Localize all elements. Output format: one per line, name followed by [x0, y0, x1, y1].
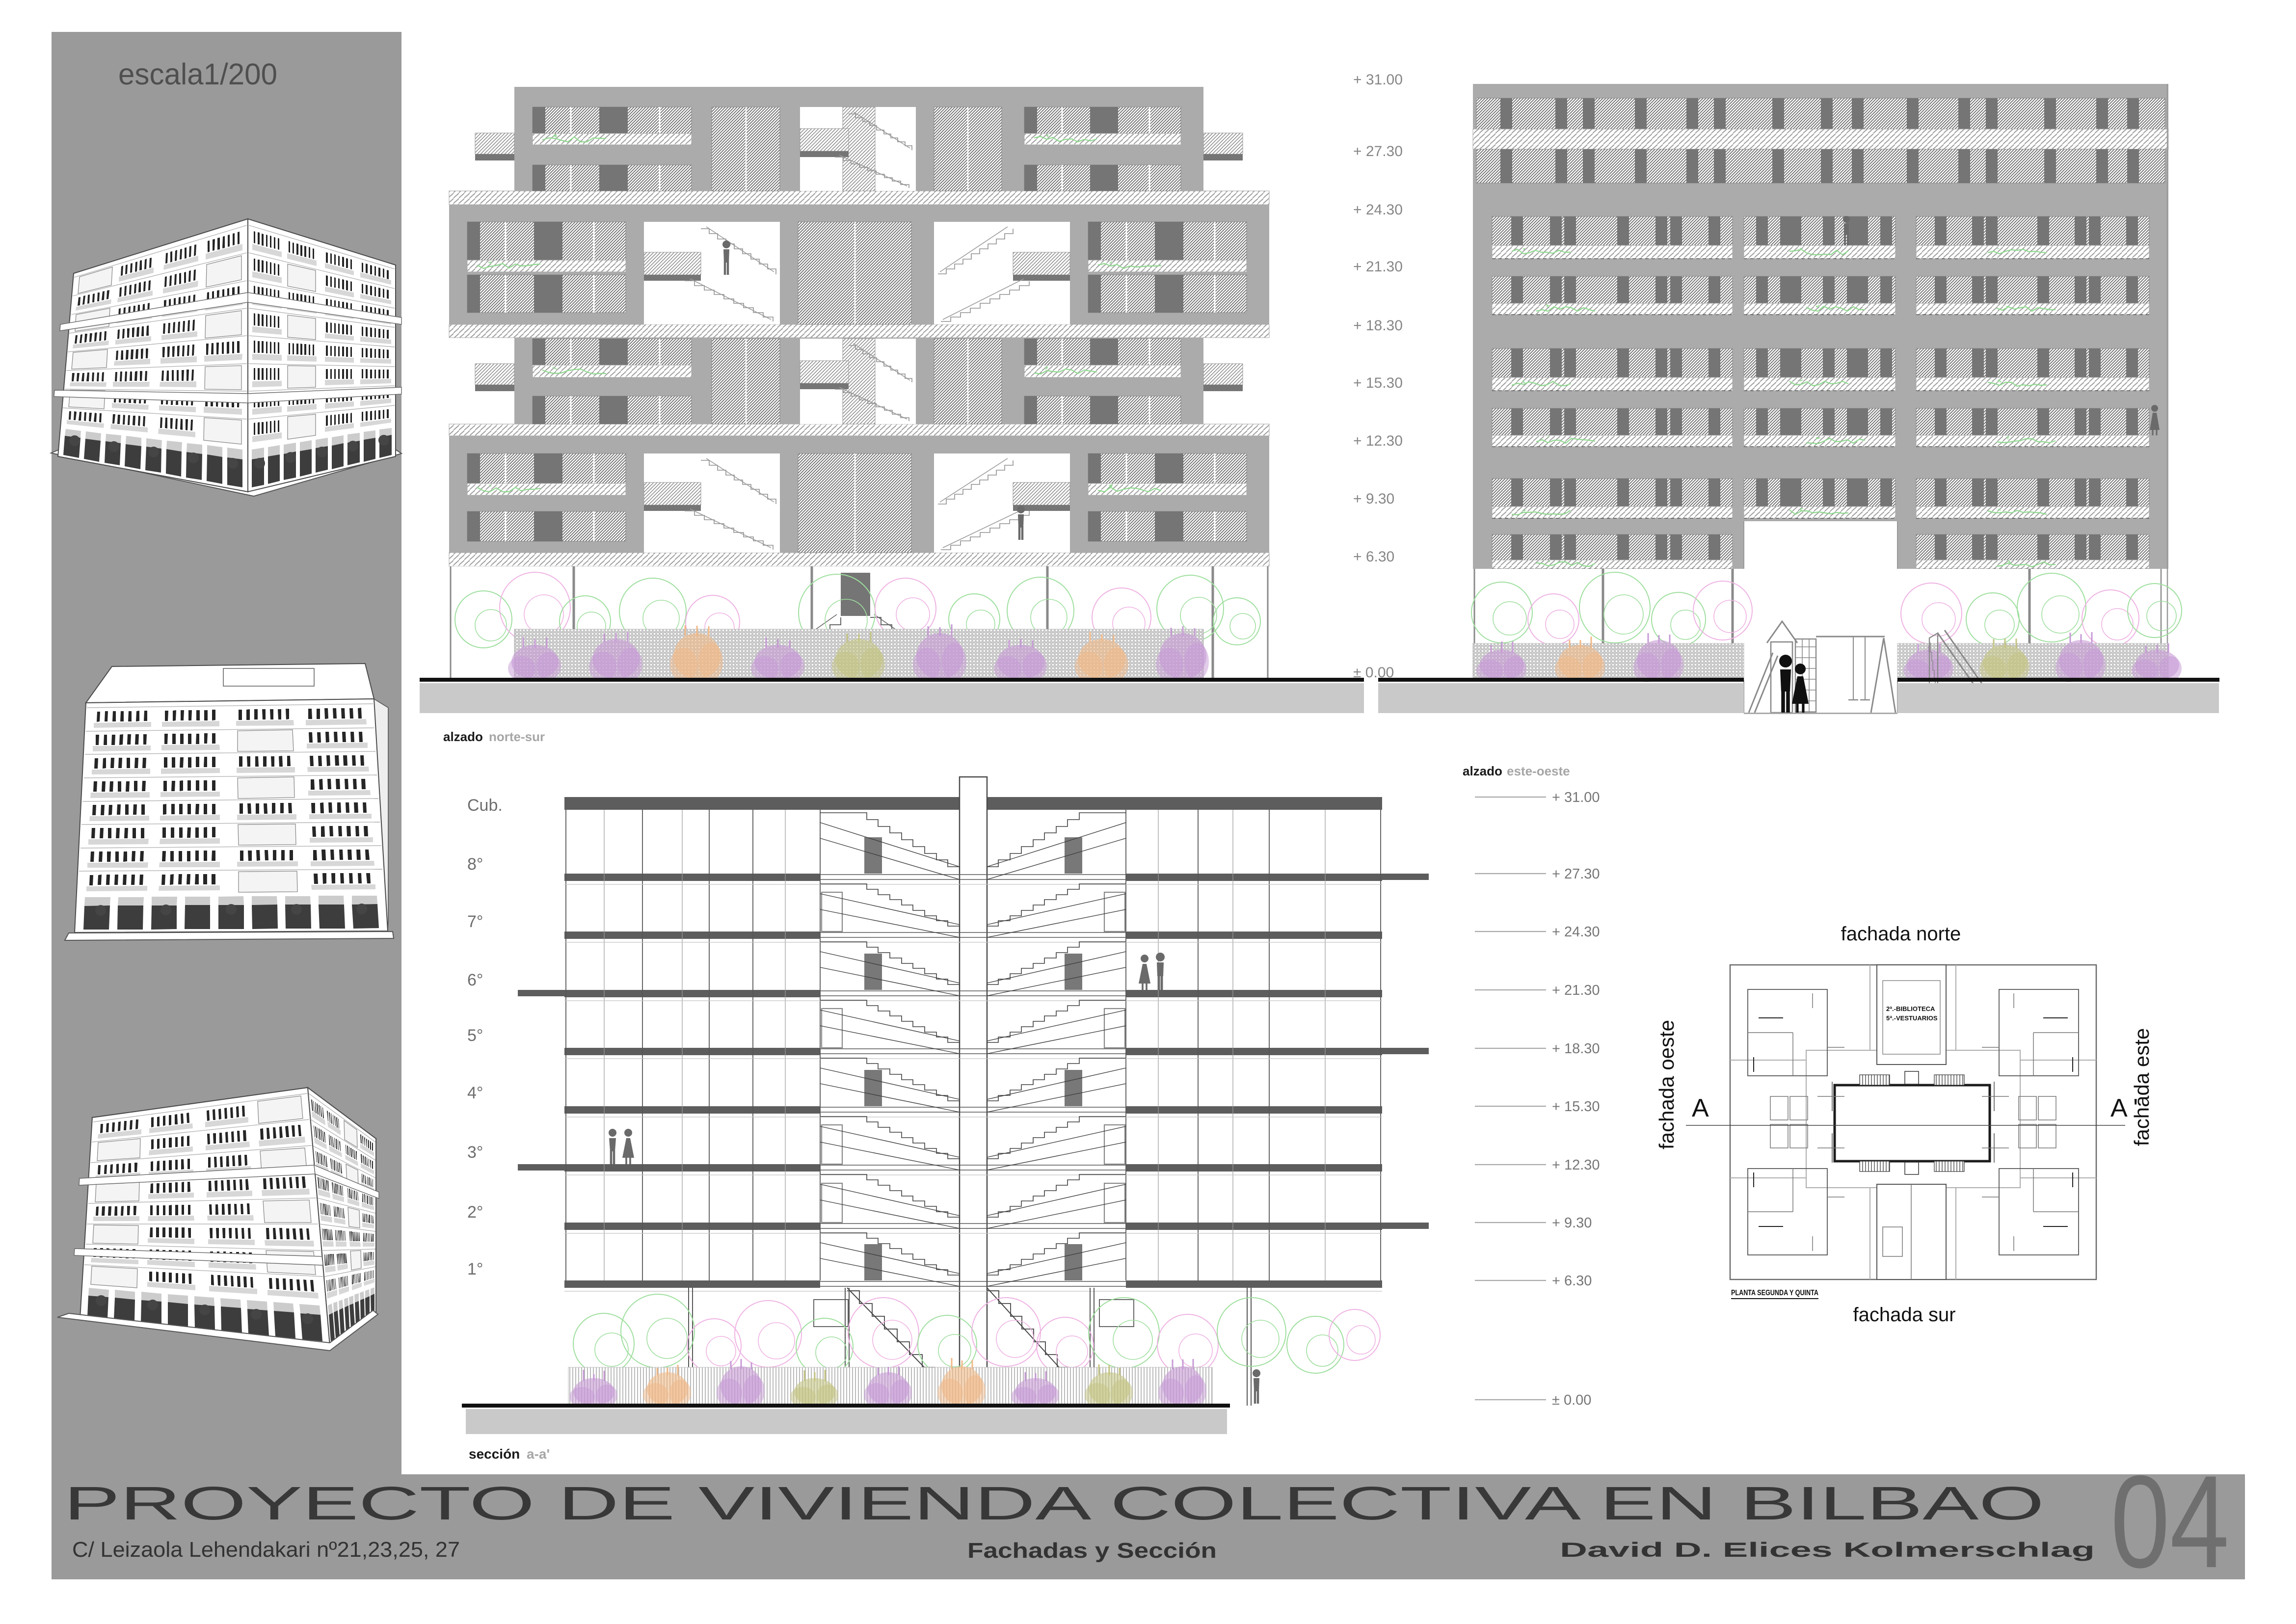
- svg-text:+ 31.00: + 31.00: [1353, 72, 1403, 88]
- svg-text:+ 15.30: + 15.30: [1552, 1099, 1600, 1115]
- svg-text:escala1/200: escala1/200: [118, 57, 277, 91]
- svg-text:4°: 4°: [467, 1084, 483, 1102]
- svg-text:+ 31.00: + 31.00: [1552, 790, 1600, 805]
- svg-text:+ 24.30: + 24.30: [1552, 924, 1600, 940]
- svg-text:fachada oeste: fachada oeste: [1655, 1020, 1678, 1149]
- svg-text:alzado: alzado: [443, 729, 483, 744]
- svg-text:04: 04: [2110, 1448, 2229, 1595]
- svg-text:A: A: [1692, 1094, 1709, 1122]
- svg-text:+ 21.30: + 21.30: [1353, 259, 1403, 275]
- svg-text:+ 15.30: + 15.30: [1353, 375, 1403, 391]
- svg-text:este-oeste: este-oeste: [1507, 764, 1570, 778]
- svg-text:1°: 1°: [467, 1260, 483, 1278]
- svg-text:+ 6.30: + 6.30: [1552, 1273, 1592, 1289]
- svg-text:6°: 6°: [467, 971, 483, 989]
- svg-text:± 0.00: ± 0.00: [1552, 1392, 1591, 1408]
- svg-text:+ 9.30: + 9.30: [1552, 1215, 1592, 1231]
- svg-text:C/ Leizaola Lehendakari nº21,2: C/ Leizaola Lehendakari nº21,23,25, 27: [72, 1538, 460, 1562]
- svg-text:5°: 5°: [467, 1026, 483, 1045]
- svg-text:alzado: alzado: [1463, 764, 1502, 778]
- svg-text:+ 12.30: + 12.30: [1353, 433, 1403, 449]
- svg-text:5ª.-VESTUARIOS: 5ª.-VESTUARIOS: [1886, 1014, 1938, 1022]
- svg-text:+ 6.30: + 6.30: [1353, 549, 1394, 565]
- svg-text:Fachadas y Sección: Fachadas y Sección: [967, 1539, 1217, 1563]
- svg-text:PROYECTO DE VIVIENDA COLECTIVA: PROYECTO DE VIVIENDA COLECTIVA EN BILBAO: [64, 1477, 2044, 1530]
- svg-text:+ 27.30: + 27.30: [1353, 143, 1403, 160]
- svg-text:PLANTA SEGUNDA Y QUINTA: PLANTA SEGUNDA Y QUINTA: [1731, 1289, 1818, 1297]
- svg-text:David D. Elices Kolmerschlag: David D. Elices Kolmerschlag: [1560, 1538, 2095, 1561]
- svg-text:2°: 2°: [467, 1203, 483, 1222]
- svg-text:+ 9.30: + 9.30: [1353, 491, 1394, 507]
- svg-text:Cub.: Cub.: [467, 796, 503, 815]
- svg-text:± 0.00: ± 0.00: [1353, 665, 1394, 681]
- svg-text:+ 24.30: + 24.30: [1353, 202, 1403, 218]
- svg-text:sección: sección: [469, 1446, 520, 1462]
- svg-text:2ª.-BIBLIOTECA: 2ª.-BIBLIOTECA: [1886, 1005, 1935, 1012]
- svg-text:7°: 7°: [467, 912, 483, 931]
- svg-text:+ 18.30: + 18.30: [1552, 1041, 1600, 1057]
- svg-text:fachada este: fachada este: [2130, 1028, 2153, 1146]
- svg-text:+ 21.30: + 21.30: [1552, 983, 1600, 998]
- svg-text:+ 27.30: + 27.30: [1552, 866, 1600, 882]
- svg-text:+ 18.30: + 18.30: [1353, 318, 1403, 334]
- svg-text:fachada norte: fachada norte: [1841, 923, 1961, 945]
- svg-text:+ 12.30: + 12.30: [1552, 1157, 1600, 1173]
- svg-text:3°: 3°: [467, 1143, 483, 1162]
- svg-text:a-a': a-a': [527, 1446, 550, 1462]
- svg-text:norte-sur: norte-sur: [489, 729, 545, 744]
- svg-text:8°: 8°: [467, 855, 483, 874]
- svg-text:fachada sur: fachada sur: [1853, 1304, 1955, 1326]
